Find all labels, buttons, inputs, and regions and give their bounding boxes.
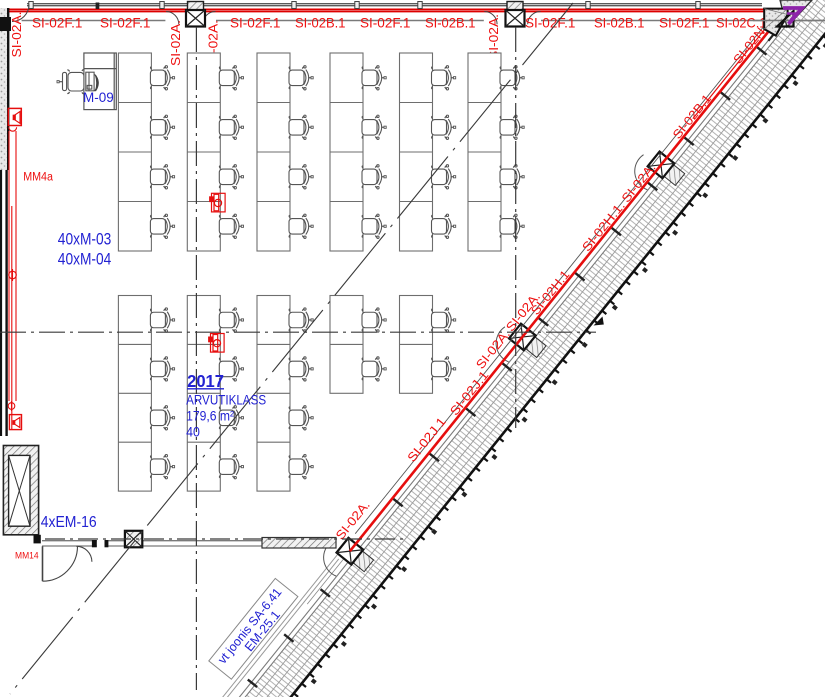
svg-text:40: 40 <box>186 424 200 440</box>
svg-text:SI-02F.1: SI-02F.1 <box>100 14 151 30</box>
svg-text:SI-02F.1: SI-02F.1 <box>659 14 710 30</box>
svg-text:ARVUTIKLASS: ARVUTIKLASS <box>186 393 266 408</box>
svg-text:MM4a: MM4a <box>23 172 53 184</box>
svg-text:SI-02B.1: SI-02B.1 <box>594 14 645 30</box>
svg-text:2017: 2017 <box>187 371 224 391</box>
svg-text:40xM-03: 40xM-03 <box>58 229 112 248</box>
svg-text:SI-02A.: SI-02A. <box>169 20 183 66</box>
svg-text:SI-02F.1: SI-02F.1 <box>360 14 411 30</box>
svg-text:40xM-04: 40xM-04 <box>58 250 112 269</box>
svg-text:SI-02C.1: SI-02C.1 <box>716 14 767 30</box>
svg-text:SI-02A.: SI-02A. <box>10 12 24 58</box>
svg-text:4xEM-16: 4xEM-16 <box>41 514 97 531</box>
svg-text:MM14: MM14 <box>15 550 39 560</box>
svg-text:SI-02F.1: SI-02F.1 <box>230 14 281 30</box>
svg-text:179,6 m²: 179,6 m² <box>186 408 234 424</box>
svg-text:SI-02F.1: SI-02F.1 <box>525 14 576 30</box>
svg-text:SI-02F.1: SI-02F.1 <box>32 14 83 30</box>
svg-text:M-09: M-09 <box>83 89 114 105</box>
svg-text:SI-02B.1: SI-02B.1 <box>295 14 346 30</box>
svg-text:SI-02B.1: SI-02B.1 <box>425 14 476 30</box>
